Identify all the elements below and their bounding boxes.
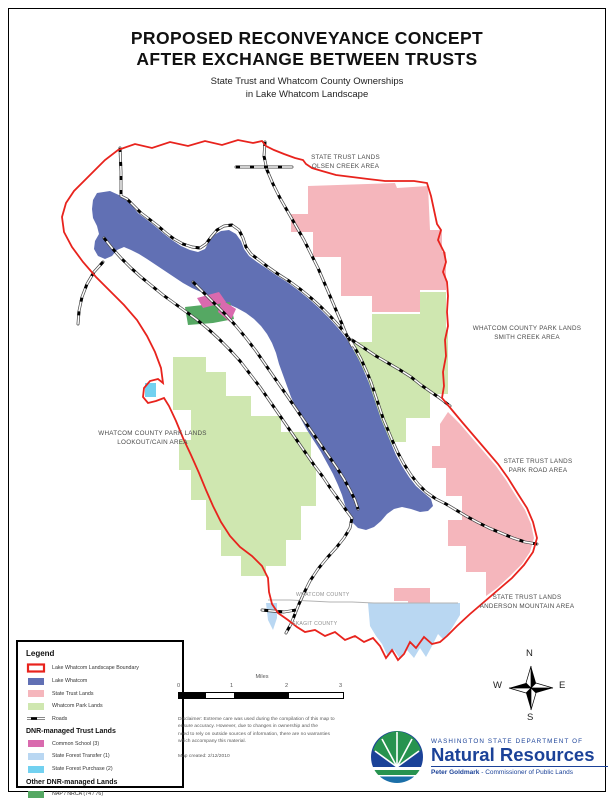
legend-label-boundary: Lake Whatcom Landscape Boundary bbox=[52, 665, 139, 671]
label-olsen-line2: OLSEN CREEK AREA bbox=[268, 163, 423, 172]
legend-label-forest-transfer: State Forest Transfer (1) bbox=[52, 753, 110, 759]
legend-title: Legend bbox=[26, 649, 174, 658]
legend-label-forest-purchase: State Forest Purchase (2) bbox=[52, 766, 113, 772]
forest-transfer-swatch bbox=[26, 752, 46, 761]
label-park-road-line1: STATE TRUST LANDS bbox=[468, 458, 608, 467]
scale-tick-3: 3 bbox=[339, 683, 342, 689]
scale-tick-1: 1 bbox=[230, 683, 233, 689]
dnr-logo-icon bbox=[370, 730, 424, 784]
state-forest-transfer-area-west bbox=[266, 603, 277, 630]
legend-row-forest-transfer: State Forest Transfer (1) bbox=[26, 752, 174, 761]
legend-row-boundary: Lake Whatcom Landscape Boundary bbox=[26, 663, 174, 673]
label-lookout-line2: LOOKOUT/CAIN AREA bbox=[75, 439, 230, 448]
legend-subheader-trust: DNR-managed Trust Lands bbox=[26, 728, 174, 735]
logo-commissioner-title: - Commissioner of Public Lands bbox=[479, 769, 573, 776]
boundary-swatch bbox=[26, 663, 46, 673]
state-trust-swatch bbox=[26, 689, 46, 698]
disclaimer-line3: need to rely on outside sources of infor… bbox=[178, 731, 398, 738]
label-park-road: STATE TRUST LANDS PARK ROAD AREA bbox=[468, 458, 608, 476]
disclaimer: Disclaimer: Extreme care was used during… bbox=[178, 716, 398, 745]
disclaimer-line4: which accompany this material. bbox=[178, 738, 398, 745]
legend-label-roads: Roads bbox=[52, 716, 67, 722]
lake-swatch bbox=[26, 677, 46, 686]
dnr-logo-text: WASHINGTON STATE DEPARTMENT OF Natural R… bbox=[431, 738, 608, 776]
disclaimer-line1: Disclaimer: Extreme care was used during… bbox=[178, 716, 398, 723]
compass-west-label: W bbox=[493, 680, 502, 691]
logo-agency-name: Natural Resources bbox=[431, 745, 608, 765]
label-whatcom-county: WHATCOM COUNTY bbox=[296, 592, 350, 598]
label-anderson-mountain: STATE TRUST LANDS ANDERSON MOUNTAIN AREA bbox=[448, 594, 606, 612]
logo-divider bbox=[431, 766, 608, 767]
legend-label-common-school: Common School (3) bbox=[52, 741, 99, 747]
label-smith-line2: SMITH CREEK AREA bbox=[448, 334, 606, 343]
dnr-logo-block: WASHINGTON STATE DEPARTMENT OF Natural R… bbox=[370, 727, 608, 787]
forest-purchase-swatch bbox=[26, 765, 46, 774]
compass-rose: N S W E bbox=[493, 650, 569, 726]
compass-star-icon bbox=[505, 662, 557, 714]
park-lands-swatch bbox=[26, 702, 46, 711]
label-smith-creek: WHATCOM COUNTY PARK LANDS SMITH CREEK AR… bbox=[448, 325, 606, 343]
scale-bar-graphic bbox=[178, 692, 344, 699]
legend-label-park-lands: Whatcom Park Lands bbox=[52, 703, 103, 709]
nap-nrca-swatch bbox=[26, 790, 46, 799]
legend-row-state-trust: State Trust Lands bbox=[26, 689, 174, 698]
scale-unit-label: Miles bbox=[178, 674, 346, 680]
legend-row-roads: Roads bbox=[26, 714, 174, 723]
scale-tick-0: 0 bbox=[177, 683, 180, 689]
label-anderson-line2: ANDERSON MOUNTAIN AREA bbox=[448, 603, 606, 612]
label-lookout-line1: WHATCOM COUNTY PARK LANDS bbox=[75, 430, 230, 439]
legend: Legend Lake Whatcom Landscape Boundary L… bbox=[16, 640, 184, 788]
legend-row-forest-purchase: State Forest Purchase (2) bbox=[26, 765, 174, 774]
legend-row-lake: Lake Whatcom bbox=[26, 677, 174, 686]
legend-label-lake: Lake Whatcom bbox=[52, 678, 87, 684]
disclaimer-line2: ensure accuracy. However, due to changes… bbox=[178, 723, 398, 730]
label-smith-line1: WHATCOM COUNTY PARK LANDS bbox=[448, 325, 606, 334]
label-olsen-creek: STATE TRUST LANDS OLSEN CREEK AREA bbox=[268, 154, 423, 172]
logo-commissioner-name: Peter Goldmark bbox=[431, 769, 479, 776]
legend-row-park-lands: Whatcom Park Lands bbox=[26, 702, 174, 711]
legend-subheader-other: Other DNR-managed Lands bbox=[26, 779, 174, 786]
label-olsen-line1: STATE TRUST LANDS bbox=[268, 154, 423, 163]
compass-north-label: N bbox=[526, 648, 533, 659]
legend-label-state-trust: State Trust Lands bbox=[52, 691, 94, 697]
legend-row-common-school: Common School (3) bbox=[26, 739, 174, 748]
scale-bar: Miles 0 1 2 3 bbox=[178, 674, 346, 708]
legend-label-nap: NAP / NRCA (74 / 76) bbox=[52, 791, 103, 797]
label-park-road-line2: PARK ROAD AREA bbox=[468, 467, 608, 476]
legend-row-nap: NAP / NRCA (74 / 76) bbox=[26, 790, 174, 799]
compass-east-label: E bbox=[559, 680, 565, 691]
scale-tick-2: 2 bbox=[285, 683, 288, 689]
label-lookout-cain: WHATCOM COUNTY PARK LANDS LOOKOUT/CAIN A… bbox=[75, 430, 230, 448]
map-created-date: Map created: 2/12/2010 bbox=[178, 754, 230, 759]
roads-swatch bbox=[26, 714, 46, 723]
label-skagit-county: SKAGIT COUNTY bbox=[292, 621, 337, 627]
label-anderson-line1: STATE TRUST LANDS bbox=[448, 594, 606, 603]
common-school-swatch bbox=[26, 739, 46, 748]
logo-commissioner-line: Peter Goldmark - Commissioner of Public … bbox=[431, 769, 608, 776]
